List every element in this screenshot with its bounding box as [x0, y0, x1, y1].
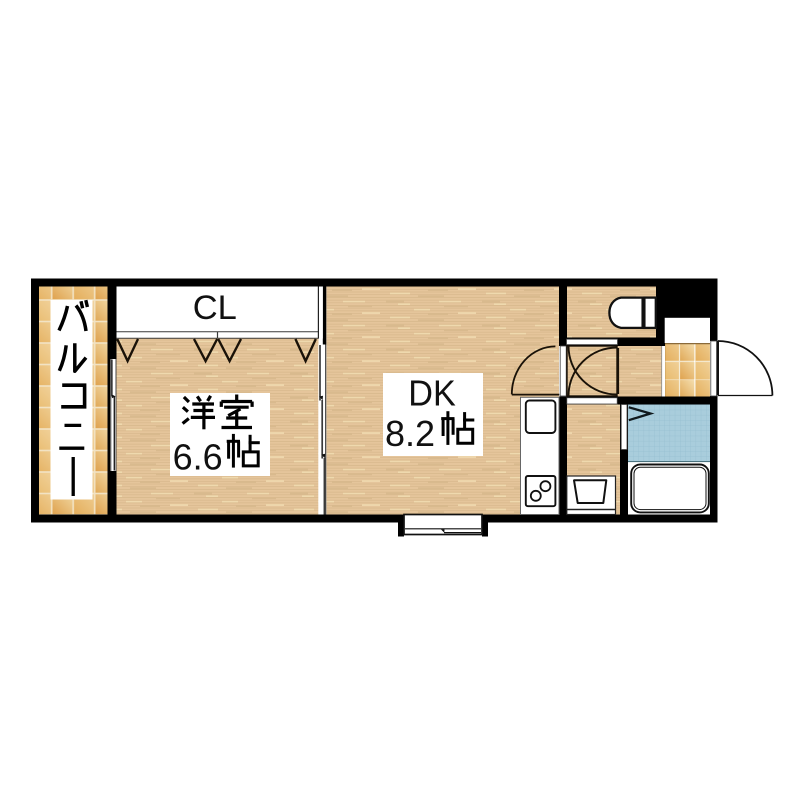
- svg-text:6.6: 6.6: [173, 436, 223, 477]
- svg-text:8.2: 8.2: [385, 413, 435, 454]
- svg-text:DK: DK: [408, 374, 456, 414]
- svg-text:CL: CL: [193, 289, 237, 327]
